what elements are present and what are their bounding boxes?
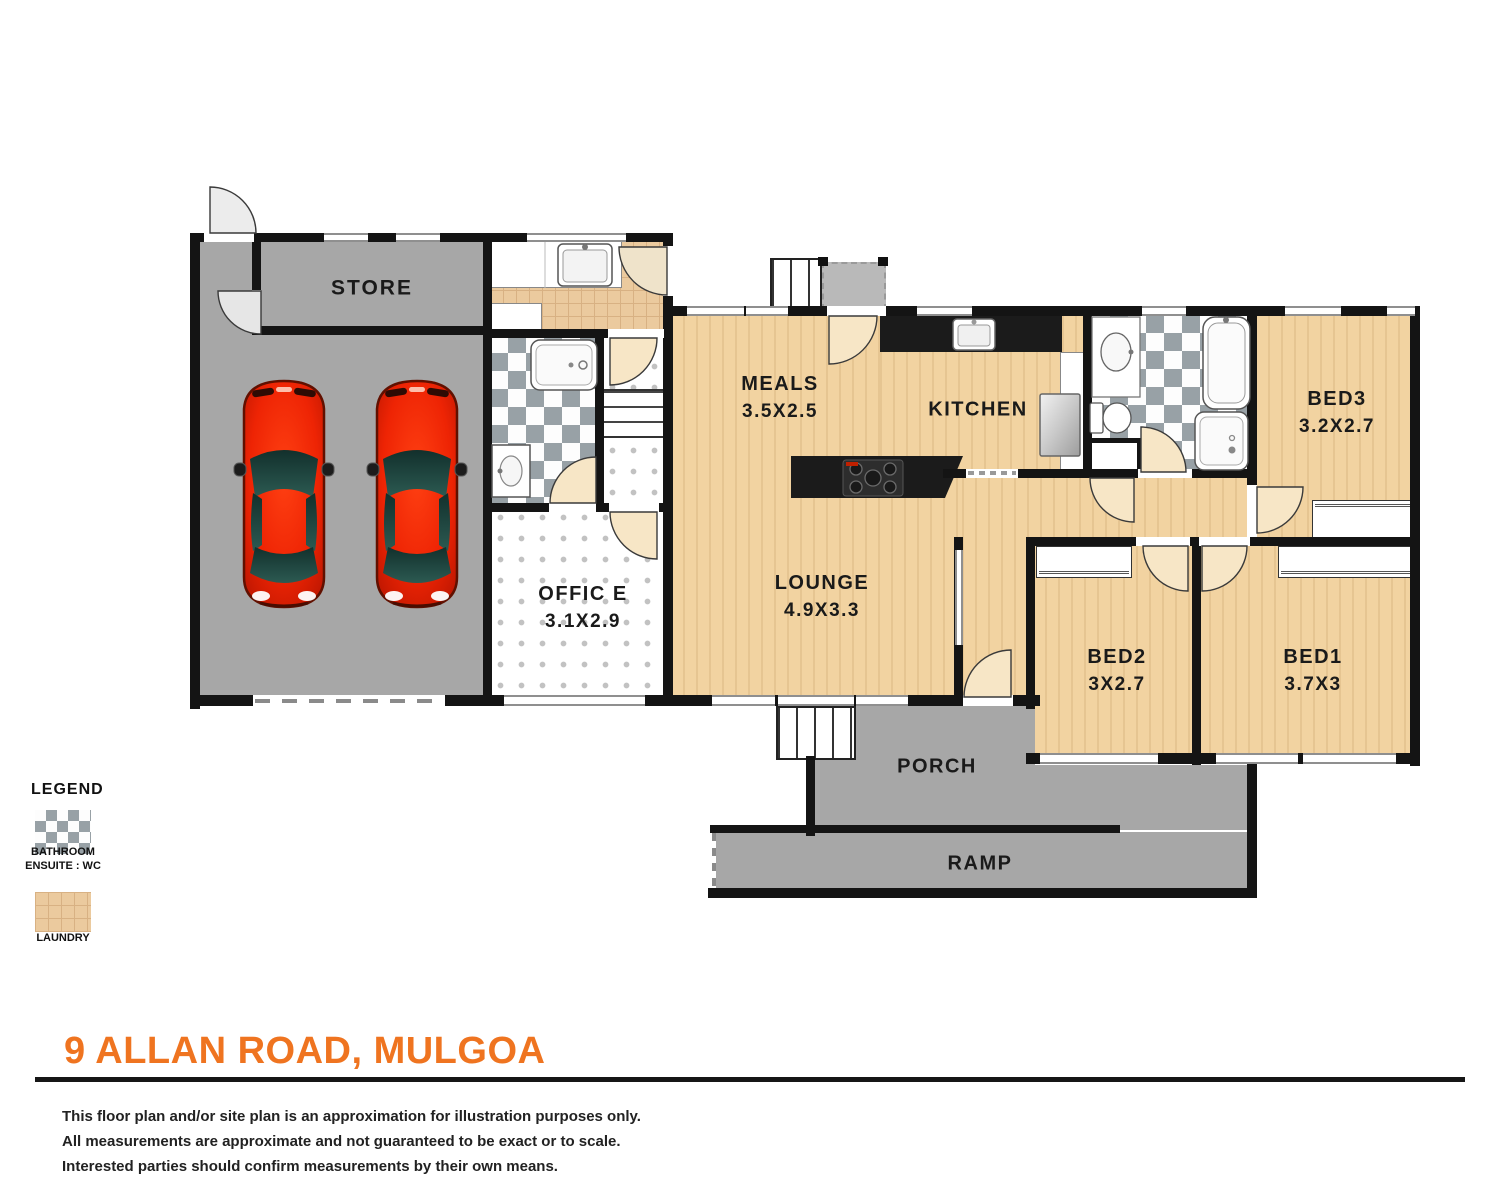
wall: [595, 333, 604, 512]
wall: [1247, 756, 1257, 898]
window: [687, 306, 744, 316]
landing-post: [878, 257, 888, 266]
bed2-robe: [1036, 546, 1132, 578]
wall: [190, 233, 200, 709]
legend-label-ensuite-wc: ENSUITE : WC: [20, 860, 106, 872]
window: [1216, 753, 1298, 764]
window: [527, 233, 626, 242]
door-opening: [827, 306, 886, 316]
room-label-bed3: BED3 3.2X2.7: [1299, 386, 1375, 440]
window: [712, 695, 775, 706]
legend-label-bathroom: BATHROOM: [20, 846, 106, 858]
door-opening: [663, 246, 673, 296]
door-opening: [252, 290, 261, 332]
disclaimer-line-2: All measurements are approximate and not…: [62, 1133, 621, 1150]
side-entry-landing: [822, 262, 886, 310]
room-label-kitchen: KITCHEN: [928, 397, 1027, 424]
disclaimer-line-3: Interested parties should confirm measur…: [62, 1158, 558, 1175]
kitchen-island: [791, 456, 945, 498]
porch-floor-left: [815, 758, 856, 830]
opening-dashes: [968, 471, 1016, 475]
laundry-counter: [490, 240, 622, 288]
ramp-open-end-dashes: [712, 833, 716, 889]
robe-track: [1039, 570, 1129, 575]
legend-title: LEGEND: [31, 781, 104, 799]
wall: [252, 326, 492, 335]
bed1-robe: [1278, 546, 1413, 578]
door-opening: [1247, 485, 1257, 537]
window: [1387, 306, 1415, 316]
door-opening: [1136, 537, 1190, 546]
door-opening: [609, 503, 659, 512]
door-opening: [204, 233, 254, 242]
wc-floor: [490, 335, 602, 507]
disclaimer-line-1: This floor plan and/or site plan is an a…: [62, 1108, 641, 1125]
divider-rule: [35, 1077, 1465, 1082]
wall: [483, 233, 492, 706]
exterior-door: [210, 187, 256, 233]
room-label-office: OFFIC E 3.1X2.9: [538, 581, 627, 635]
window: [1040, 753, 1158, 764]
front-door-opening: [963, 695, 1013, 706]
wall: [710, 825, 1120, 833]
window: [396, 233, 440, 242]
room-label-porch: PORCH: [897, 754, 977, 781]
linen-closet: [1088, 438, 1142, 472]
window: [1142, 306, 1186, 316]
floor-plan-page: STORE MEALS 3.5X2.5 KITCHEN BED3 3.2X2.7…: [0, 0, 1500, 1200]
window: [746, 306, 788, 316]
side-entry-steps: [770, 258, 822, 310]
wall: [806, 756, 815, 836]
window: [324, 233, 368, 242]
internal-stairs: [602, 389, 668, 438]
window: [778, 695, 854, 706]
room-label-bed2: BED2 3X2.7: [1087, 644, 1146, 698]
legend-label-laundry: LAUNDRY: [20, 932, 106, 944]
door-opening: [608, 329, 664, 338]
room-label-bed1: BED1 3.7X3: [1283, 644, 1342, 698]
room-label-ramp: RAMP: [948, 851, 1013, 878]
room-label-lounge: LOUNGE 4.9X3.3: [775, 570, 870, 624]
door-opening: [549, 503, 596, 512]
sidelight-window: [955, 550, 963, 645]
wall: [1192, 543, 1201, 765]
window: [504, 695, 645, 706]
window: [917, 306, 972, 316]
robe-track: [1315, 503, 1410, 508]
wall: [1026, 537, 1035, 709]
wall: [1083, 306, 1092, 478]
wall: [1410, 306, 1420, 766]
window: [856, 695, 908, 706]
garage-door-dashes: [255, 699, 443, 703]
room-label-meals: MEALS 3.5X2.5: [741, 371, 819, 425]
legend-swatch-laundry: [35, 892, 91, 932]
front-steps: [776, 706, 856, 760]
room-label-store: STORE: [331, 275, 413, 302]
window: [1285, 306, 1341, 316]
door-opening: [1199, 537, 1250, 546]
porch-floor-right: [1035, 765, 1248, 830]
door-opening: [1138, 469, 1192, 478]
wall: [663, 233, 673, 706]
property-address-title: 9 ALLAN ROAD, MULGOA: [64, 1030, 545, 1073]
robe-track: [1281, 570, 1410, 575]
entry-hall-floor: [962, 541, 1032, 700]
landing-post: [818, 257, 828, 266]
kitchen-bench-top: [880, 315, 1062, 352]
wall: [708, 888, 1257, 898]
window: [1303, 753, 1396, 764]
bed3-robe: [1312, 500, 1413, 538]
hallway-floor: [962, 473, 1255, 541]
